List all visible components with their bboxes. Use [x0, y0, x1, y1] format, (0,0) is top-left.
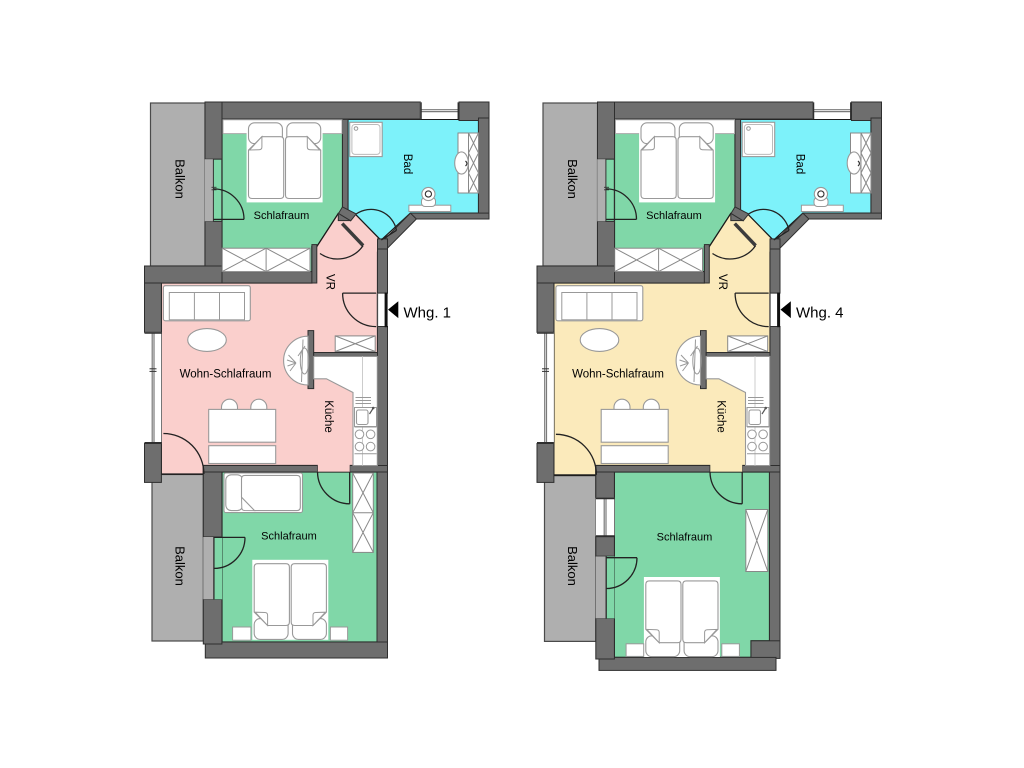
- svg-text:Schlafraum: Schlafraum: [646, 210, 702, 222]
- svg-text:Schlafraum: Schlafraum: [261, 531, 317, 543]
- svg-text:Schlafraum: Schlafraum: [657, 532, 713, 544]
- svg-text:Balkon: Balkon: [173, 159, 188, 199]
- svg-text:Balkon: Balkon: [565, 546, 580, 586]
- svg-text:Küche: Küche: [322, 400, 334, 433]
- svg-text:Wohn-Schlafraum: Wohn-Schlafraum: [180, 369, 272, 381]
- svg-text:Schlafraum: Schlafraum: [254, 210, 310, 222]
- svg-text:VR: VR: [716, 274, 728, 290]
- svg-text:Wohn-Schlafraum: Wohn-Schlafraum: [572, 369, 664, 381]
- svg-text:Bad: Bad: [401, 154, 413, 174]
- svg-text:Balkon: Balkon: [173, 546, 188, 586]
- svg-text:Balkon: Balkon: [565, 159, 580, 199]
- svg-text:Küche: Küche: [715, 400, 727, 433]
- svg-text:Whg. 1: Whg. 1: [404, 305, 452, 322]
- svg-text:VR: VR: [324, 274, 336, 290]
- svg-text:Whg. 4: Whg. 4: [796, 305, 844, 322]
- svg-text:Bad: Bad: [794, 154, 806, 174]
